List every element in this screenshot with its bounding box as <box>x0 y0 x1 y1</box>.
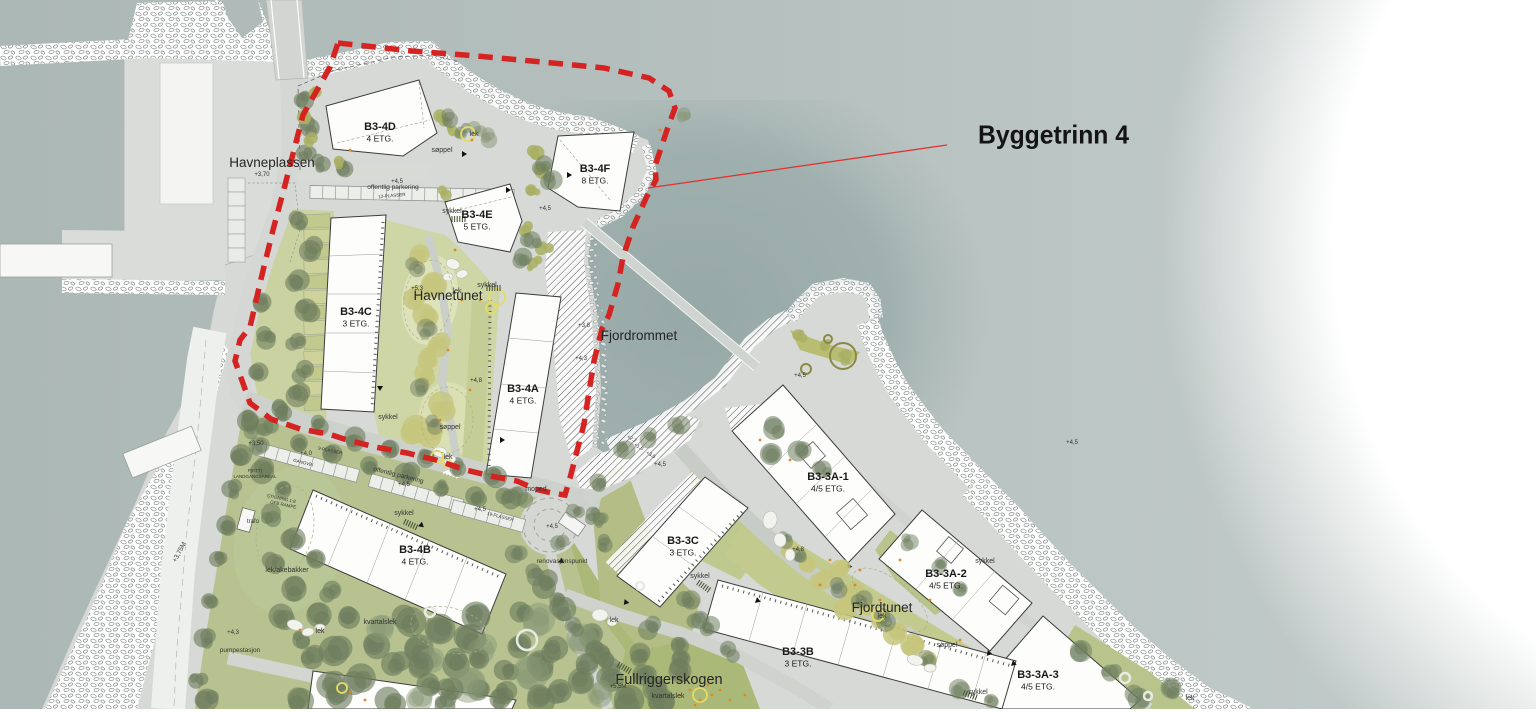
svg-text:offentlig parkering: offentlig parkering <box>367 184 419 191</box>
svg-text:Byggetrinn 4: Byggetrinn 4 <box>978 120 1129 150</box>
svg-text:lek: lek <box>444 454 453 461</box>
svg-text:LANDGANGSAREAL: LANDGANGSAREAL <box>233 474 277 479</box>
svg-text:+3,50: +3,50 <box>248 441 264 447</box>
svg-text:B3-4C: B3-4C <box>340 306 372 318</box>
svg-text:+4,5: +4,5 <box>654 462 667 468</box>
svg-text:kvartalslek: kvartalslek <box>363 619 397 626</box>
svg-text:søppel: søppel <box>431 147 452 154</box>
svg-text:søppel: søppel <box>936 642 957 649</box>
svg-text:B3-3A-3: B3-3A-3 <box>1017 669 1059 681</box>
svg-text:+4,3: +4,3 <box>575 356 588 362</box>
svg-text:4/5 ETG.: 4/5 ETG. <box>1021 682 1055 692</box>
svg-text:+4,0: +4,0 <box>300 451 313 457</box>
svg-text:B3-3A-1: B3-3A-1 <box>807 471 849 483</box>
svg-text:+4,5: +4,5 <box>391 179 404 185</box>
svg-text:B3-4D: B3-4D <box>364 121 396 133</box>
svg-text:Fjordrommet: Fjordrommet <box>601 328 678 343</box>
svg-text:4 ETG.: 4 ETG. <box>367 134 394 144</box>
svg-text:sykkel: sykkel <box>968 689 988 696</box>
svg-text:pumpestasjon: pumpestasjon <box>220 647 261 654</box>
svg-text:+5,3: +5,3 <box>411 286 424 292</box>
svg-text:lek: lek <box>470 131 479 138</box>
svg-text:4 ETG.: 4 ETG. <box>510 396 537 406</box>
svg-text:Fullriggerskogen: Fullriggerskogen <box>615 672 722 688</box>
svg-text:sykkel: sykkel <box>378 414 398 421</box>
svg-text:B3-4E: B3-4E <box>461 209 492 221</box>
svg-text:4/5 ETG.: 4/5 ETG. <box>929 581 963 591</box>
svg-text:lek: lek <box>610 617 619 624</box>
svg-text:+3,8: +3,8 <box>578 323 591 329</box>
svg-text:+4,5: +4,5 <box>539 206 552 212</box>
svg-text:B3-4B: B3-4B <box>399 544 431 556</box>
svg-text:8 ETG.: 8 ETG. <box>582 176 609 186</box>
svg-text:3 ETG.: 3 ETG. <box>785 659 812 669</box>
svg-text:P(KTT): P(KTT) <box>248 468 263 473</box>
svg-text:+4,5: +4,5 <box>398 482 411 488</box>
svg-text:+4,3: +4,3 <box>227 630 240 636</box>
svg-text:sykkel: sykkel <box>394 510 414 517</box>
svg-text:3 ETG.: 3 ETG. <box>670 548 697 558</box>
svg-text:lek: lek <box>1186 695 1195 702</box>
svg-text:3 ETG.: 3 ETG. <box>343 319 370 329</box>
svg-text:Havneplassen: Havneplassen <box>229 155 315 170</box>
svg-text:4 ETG.: 4 ETG. <box>402 557 429 567</box>
svg-text:sykkel: sykkel <box>975 558 995 565</box>
svg-text:sykkel: sykkel <box>477 282 497 289</box>
svg-text:B3-4A: B3-4A <box>507 383 539 395</box>
svg-text:+4,8: +4,8 <box>792 547 805 553</box>
svg-text:sykkel: sykkel <box>690 573 710 580</box>
svg-text:lek: lek <box>316 628 325 635</box>
svg-text:sykkel: sykkel <box>442 208 462 215</box>
svg-text:trafo: trafo <box>247 519 260 525</box>
svg-text:lek/akebakker: lek/akebakker <box>265 567 309 574</box>
svg-text:søppel: søppel <box>439 424 460 431</box>
svg-text:+4,5: +4,5 <box>1066 440 1079 446</box>
svg-text:renovasjonspunkt: renovasjonspunkt <box>537 558 588 565</box>
svg-text:B3-4F: B3-4F <box>580 163 611 175</box>
svg-text:+4,5: +4,5 <box>474 507 487 513</box>
svg-text:+4,8: +4,8 <box>470 378 483 384</box>
svg-text:B3-3A-2: B3-3A-2 <box>925 568 967 580</box>
svg-text:kvartalslek: kvartalslek <box>651 693 685 700</box>
svg-text:+4,5: +4,5 <box>546 524 559 530</box>
svg-text:B3-3C: B3-3C <box>667 535 699 547</box>
svg-text:+3,70: +3,70 <box>254 172 270 178</box>
svg-text:+4,5: +4,5 <box>794 373 807 379</box>
svg-text:lek: lek <box>453 288 462 295</box>
svg-text:5 ETG.: 5 ETG. <box>464 222 491 232</box>
svg-text:moped: moped <box>525 486 547 493</box>
svg-text:lek: lek <box>878 613 887 620</box>
svg-text:B3-3B: B3-3B <box>782 646 814 658</box>
svg-text:Havnetunet: Havnetunet <box>413 288 482 303</box>
svg-text:+5,5M: +5,5M <box>610 684 627 690</box>
svg-text:4/5 ETG.: 4/5 ETG. <box>811 484 845 494</box>
